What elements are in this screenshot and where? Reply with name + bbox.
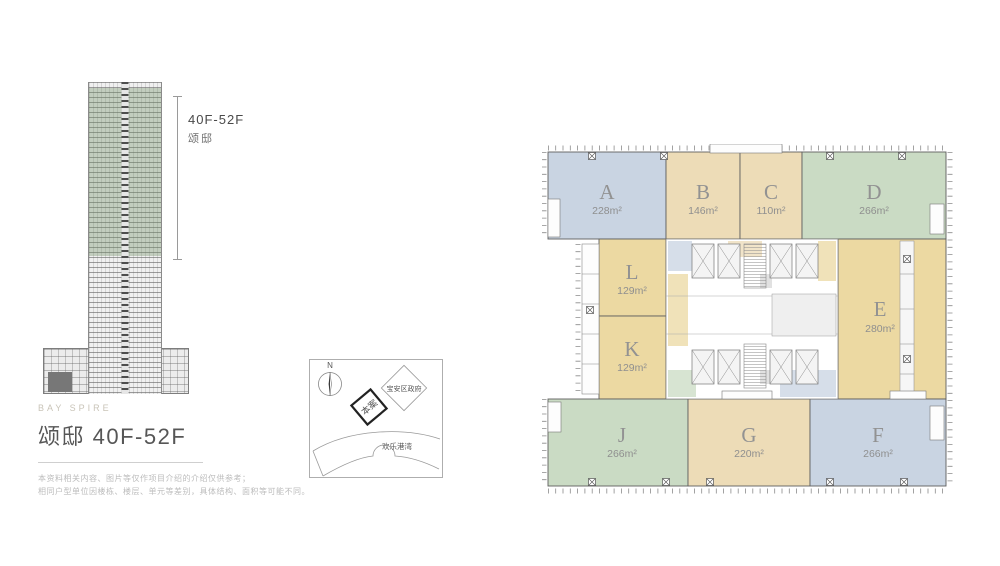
core-area (666, 239, 838, 399)
dimension-line (173, 96, 182, 260)
unit-area-G: 220m² (734, 448, 764, 460)
tower-drawing (88, 82, 162, 394)
unit-area-L: 129m² (617, 285, 647, 297)
floor-plan-svg: A 228m² B 146m² C 110m² D 266m² L 129m² … (542, 144, 954, 496)
disclaimer-line-1: 本资料相关内容、图片等仅作项目介绍的介绍仅供参考； (38, 472, 278, 485)
stairs-bottom (744, 344, 766, 388)
unit-region-E (838, 239, 946, 399)
balcony-strip-left (582, 244, 599, 394)
title-divider (38, 462, 203, 463)
unit-area-J: 266m² (607, 448, 637, 460)
floor-range-name: 颂邸 (188, 130, 244, 146)
bay-label: 欢乐港湾 (382, 441, 412, 451)
floor-range-text: 40F-52F (188, 112, 244, 127)
site-map-svg: N 宝安区政府 本案 欢乐港湾 (309, 359, 443, 479)
project-info: BAY SPIRE 颂邸 40F-52F 本资料相关内容、图片等仅作项目介绍的介… (38, 403, 278, 498)
unit-area-E: 280m² (865, 323, 895, 335)
unit-area-A: 228m² (592, 205, 622, 217)
building-elevation: 40F-52F 颂邸 (40, 82, 290, 402)
government-label: 宝安区政府 (387, 384, 422, 393)
unit-label-J: J (618, 423, 626, 447)
unit-area-D: 266m² (859, 205, 889, 217)
unit-area-C: 110m² (757, 205, 786, 217)
unit-label-D: D (866, 180, 881, 204)
stairs-top (744, 244, 766, 288)
unit-label-L: L (626, 260, 639, 284)
floor-plan: A 228m² B 146m² C 110m² D 266m² L 129m² … (542, 144, 954, 501)
unit-label-F: F (872, 423, 884, 447)
unit-label-E: E (874, 297, 887, 321)
disclaimer-text: 本资料相关内容、图片等仅作项目介绍的介绍仅供参考； 相同户型单位因楼栋、楼层、单… (38, 472, 278, 498)
unit-area-K: 129m² (617, 362, 647, 374)
unit-area-B: 146m² (688, 205, 718, 217)
core-lobby (772, 294, 836, 336)
podium-annex (48, 372, 72, 392)
compass-north-label: N (327, 361, 333, 370)
unit-label-K: K (624, 337, 639, 361)
project-subtitle-en: BAY SPIRE (38, 403, 278, 413)
page-title: 颂邸 40F-52F (38, 419, 278, 451)
unit-label-C: C (764, 180, 778, 204)
site-map: N 宝安区政府 本案 欢乐港湾 (309, 359, 443, 484)
unit-label-B: B (696, 180, 710, 204)
floor-range-label: 40F-52F 颂邸 (188, 112, 244, 146)
service-strip-E (900, 241, 914, 399)
page: 40F-52F 颂邸 BAY SPIRE 颂邸 40F-52F 本资料相关内容、… (0, 0, 1000, 566)
tower-core-line (122, 82, 129, 394)
disclaimer-line-2: 相同户型单位因楼栋、楼层、单元等差别，具体结构、面积等可能不同。 (38, 485, 278, 498)
unit-area-F: 266m² (863, 448, 893, 460)
unit-label-A: A (599, 180, 615, 204)
unit-label-G: G (741, 423, 756, 447)
